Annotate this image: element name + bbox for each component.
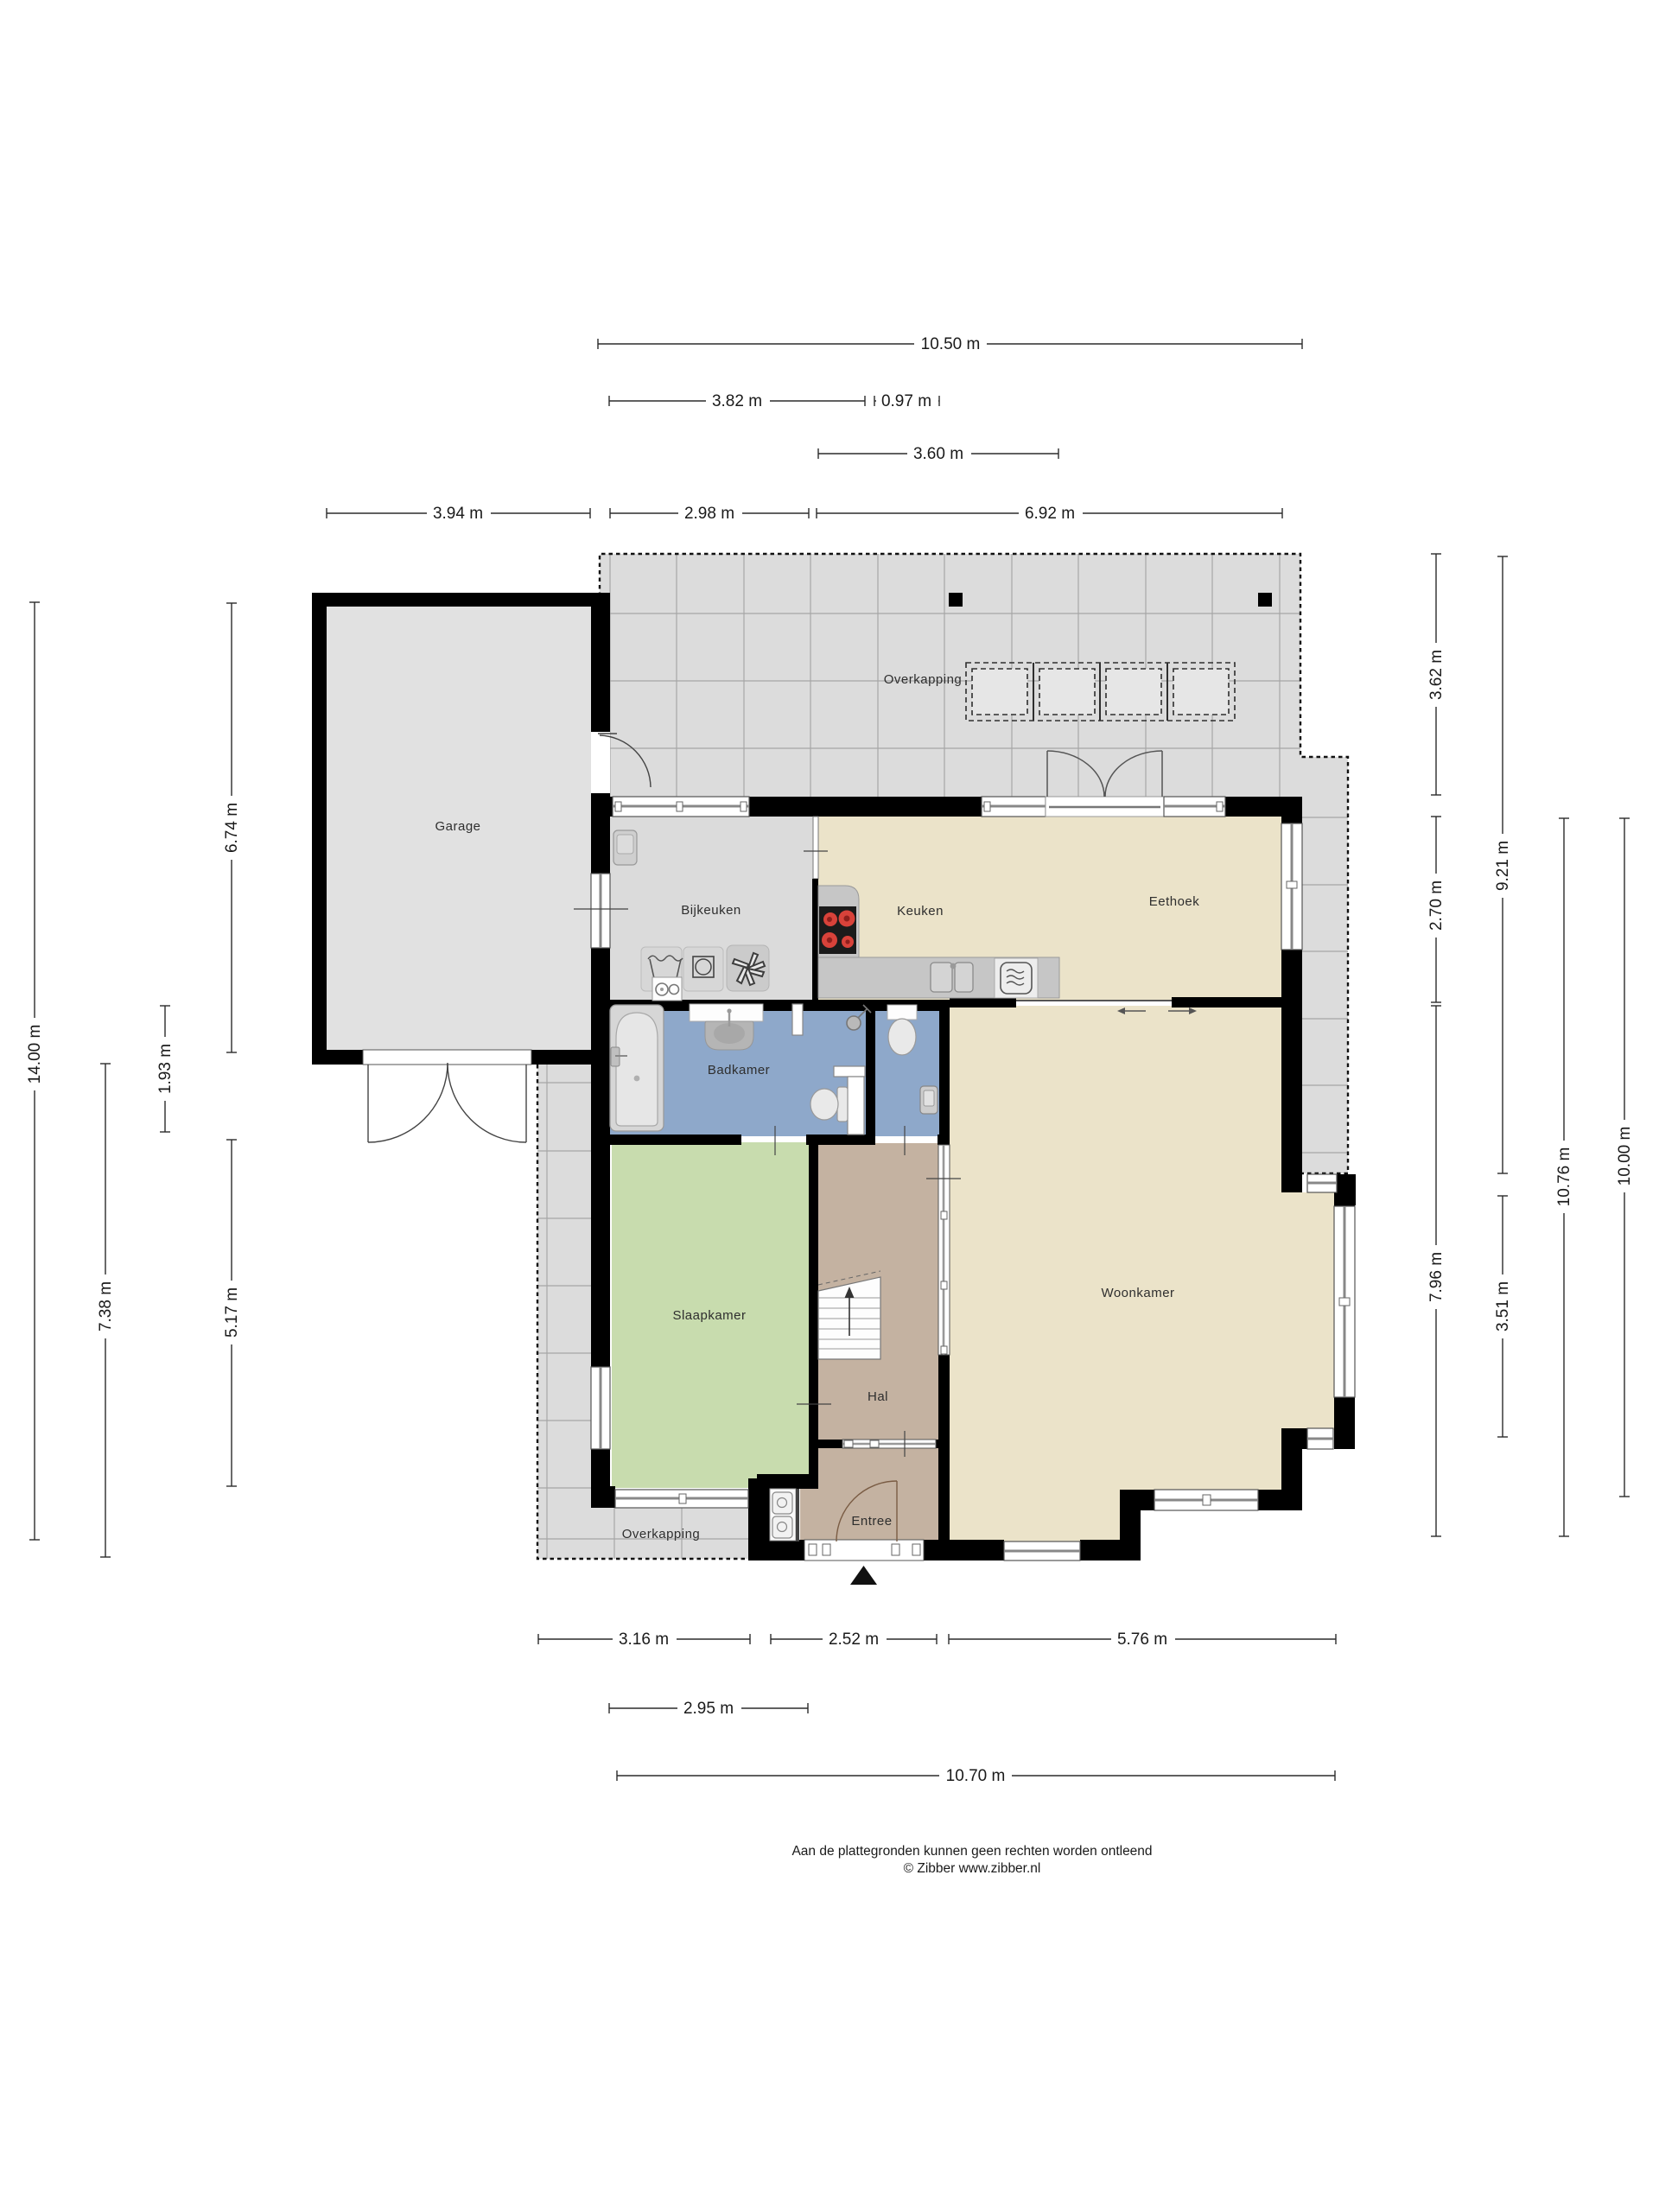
svg-text:5.76 m: 5.76 m	[1117, 1630, 1167, 1649]
svg-text:© Zibber www.zibber.nl: © Zibber www.zibber.nl	[904, 1861, 1041, 1876]
svg-text:6.74 m: 6.74 m	[223, 803, 241, 853]
svg-text:14.00 m: 14.00 m	[26, 1025, 44, 1084]
svg-text:1.93 m: 1.93 m	[156, 1044, 175, 1094]
svg-text:10.50 m: 10.50 m	[921, 335, 981, 353]
svg-text:Badkamer: Badkamer	[708, 1063, 770, 1077]
svg-text:Slaapkamer: Slaapkamer	[672, 1308, 746, 1323]
svg-text:2.70 m: 2.70 m	[1427, 880, 1446, 931]
svg-text:Woonkamer: Woonkamer	[1101, 1286, 1174, 1300]
svg-text:3.51 m: 3.51 m	[1494, 1281, 1512, 1332]
svg-text:3.16 m: 3.16 m	[619, 1630, 669, 1649]
svg-text:Overkapping: Overkapping	[884, 672, 963, 687]
svg-text:9.21 m: 9.21 m	[1494, 841, 1512, 891]
svg-text:Keuken: Keuken	[897, 904, 944, 918]
svg-text:10.76 m: 10.76 m	[1555, 1147, 1573, 1207]
svg-text:10.70 m: 10.70 m	[946, 1767, 1006, 1785]
svg-text:10.00 m: 10.00 m	[1616, 1127, 1634, 1186]
svg-text:Garage: Garage	[435, 819, 480, 834]
svg-text:2.52 m: 2.52 m	[829, 1630, 879, 1649]
svg-text:2.95 m: 2.95 m	[683, 1700, 734, 1718]
svg-text:Entree: Entree	[851, 1514, 892, 1529]
svg-text:7.96 m: 7.96 m	[1427, 1252, 1446, 1302]
svg-text:Hal: Hal	[868, 1389, 888, 1404]
svg-text:7.38 m: 7.38 m	[97, 1281, 115, 1332]
svg-text:5.17 m: 5.17 m	[223, 1287, 241, 1338]
svg-text:Aan de plattegronden kunnen ge: Aan de plattegronden kunnen geen rechten…	[791, 1844, 1152, 1859]
svg-text:3.82 m: 3.82 m	[712, 392, 762, 410]
svg-text:2.98 m: 2.98 m	[684, 505, 734, 523]
svg-text:Overkapping: Overkapping	[622, 1527, 701, 1541]
svg-text:3.62 m: 3.62 m	[1427, 650, 1446, 700]
svg-text:0.97 m: 0.97 m	[881, 392, 931, 410]
svg-text:6.92 m: 6.92 m	[1025, 505, 1075, 523]
svg-text:3.60 m: 3.60 m	[913, 445, 963, 463]
svg-text:Bijkeuken: Bijkeuken	[681, 903, 741, 918]
svg-text:Eethoek: Eethoek	[1149, 894, 1200, 909]
svg-text:3.94 m: 3.94 m	[433, 505, 483, 523]
